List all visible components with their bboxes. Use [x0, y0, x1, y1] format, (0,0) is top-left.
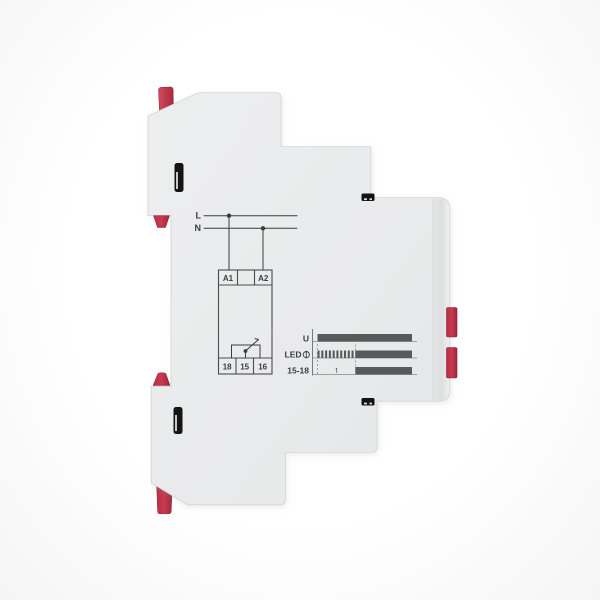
product-illustration: L N A1 A2 18 15 16 U LED [0, 0, 600, 600]
timing-row-led-label: LED [285, 350, 302, 360]
mount-slot-upper-left [175, 163, 184, 192]
timing-delay-marker: t [336, 367, 338, 374]
product-photo: L N A1 A2 18 15 16 U LED [0, 0, 600, 600]
vent-slot-upper-right [362, 194, 375, 202]
relay-pivot-dot [244, 349, 248, 353]
mount-slot-lower-left [174, 407, 183, 434]
timing-row-bars-2 [355, 367, 412, 375]
terminal-18-label: 18 [223, 363, 232, 372]
terminal-16-label: 16 [258, 363, 267, 372]
red-right-tab-upper [447, 308, 458, 338]
terminal-a2-label: A2 [258, 274, 269, 283]
din-rail-device [148, 87, 457, 514]
timing-row-1518-label: 15-18 [287, 366, 309, 376]
red-clip-jaw-lower [153, 373, 170, 386]
timing-row-u-label: U [303, 334, 309, 344]
device-body [148, 93, 450, 505]
terminal-15-label: 15 [240, 363, 249, 372]
red-clip-jaw-upper [154, 216, 170, 228]
line-n-label: N [195, 223, 202, 233]
timing-row-bars-0 [318, 334, 413, 342]
red-right-tab-lower [447, 348, 458, 379]
terminal-a1-label: A1 [223, 274, 234, 283]
line-l-label: L [196, 211, 202, 221]
vent-slot-lower-right [362, 398, 375, 406]
